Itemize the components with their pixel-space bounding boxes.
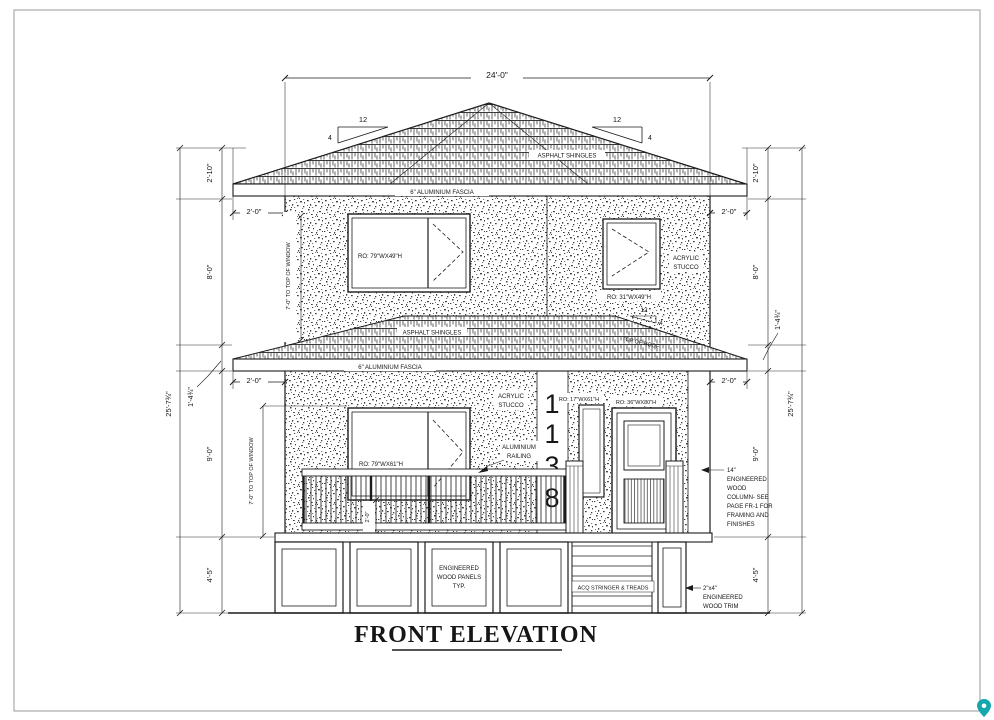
upper-fascia-label: 6" ALUMINIUM FASCIA — [410, 190, 473, 196]
main-floor-dim-right: 9'-0" — [751, 446, 760, 461]
foundation-dim-left: 4'-5" — [205, 567, 214, 582]
svg-text:ENGINEERED: ENGINEERED — [703, 595, 743, 601]
foundation-dim-right: 4'-5" — [751, 567, 760, 582]
overhang-dim-lower-left: 2'-0" — [247, 376, 262, 385]
svg-text:COLUMN- SEE: COLUMN- SEE — [727, 495, 769, 501]
overhang-dim-upper-right: 2'-0" — [722, 207, 737, 216]
svg-text:RAILING: RAILING — [507, 454, 531, 460]
svg-text:STUCCO: STUCCO — [498, 403, 524, 409]
svg-text:12: 12 — [613, 115, 621, 124]
upper-fascia-band — [233, 184, 747, 196]
main-stucco-label: ACRYLIC STUCCO — [494, 390, 528, 410]
front-elevation-sheet: ASPHALT SHINGLES 6" ALUMINIUM FASCIA 12 … — [0, 0, 994, 720]
upper-floor-dim-right: 8'-0" — [751, 264, 760, 279]
wood-panel-3: ENGINEERED WOOD PANELS TYP. — [425, 542, 493, 613]
upper-stucco-label: ACRYLIC STUCCO — [669, 252, 703, 272]
location-pin-icon — [977, 699, 991, 717]
roof-band-dim-left: 1'-4¾" — [188, 387, 195, 407]
roof-height-dim-left: 2'-10" — [205, 163, 214, 182]
svg-text:ACRYLIC: ACRYLIC — [673, 256, 700, 262]
upper-roof-material-label: ASPHALT SHINGLES — [538, 154, 597, 160]
total-height-dim-left: 25'-7¾" — [164, 391, 173, 417]
deck-band — [275, 533, 712, 542]
newel-post-left — [566, 461, 583, 535]
porch-railing — [302, 469, 566, 530]
stair-note: ACQ STRINGER & TREADS — [578, 586, 649, 592]
main-window-ro: RO: 79"WX61"H — [359, 462, 403, 468]
wood-panel-4 — [500, 542, 568, 613]
svg-text:ALUMINIUM: ALUMINIUM — [502, 445, 536, 451]
svg-text:TYP.: TYP. — [453, 584, 466, 590]
drawing-title: FRONT ELEVATION — [354, 622, 598, 650]
svg-text:FINISHES: FINISHES — [727, 522, 755, 528]
svg-text:PAGE FR-1 FOR: PAGE FR-1 FOR — [727, 504, 773, 510]
upper-floor-dim-left: 8'-0" — [205, 264, 214, 279]
main-floor-dim-left: 9'-0" — [205, 446, 214, 461]
upper-roof: ASPHALT SHINGLES 6" ALUMINIUM FASCIA 12 … — [233, 103, 747, 196]
main-floor-wall: 1 1 3 8 RO: 79"WX61"H ACRYLIC STUCCO RO:… — [249, 371, 710, 539]
upper-window-head-dim: 7'-0" TO TOP OF WINDOW — [286, 242, 292, 310]
upper-left-window-ro: RO: 79"WX49"H — [358, 254, 402, 260]
svg-text:ENGINEERED: ENGINEERED — [439, 566, 479, 572]
page-title: FRONT ELEVATION — [354, 622, 598, 648]
svg-text:2'-0": 2'-0" — [365, 511, 371, 522]
wood-panel-right — [658, 542, 686, 613]
roof-band-dim-right: 1'-4¾" — [775, 310, 782, 330]
svg-text:12: 12 — [640, 307, 648, 314]
roof-height-dim-right: 2'-10" — [751, 163, 760, 182]
svg-text:STUCCO: STUCCO — [673, 265, 699, 271]
upper-right-window: RO: 31"WX49"H — [597, 219, 661, 301]
svg-text:12: 12 — [359, 115, 367, 124]
svg-text:1: 1 — [544, 419, 559, 449]
stairs: ACQ STRINGER & TREADS — [572, 542, 654, 613]
svg-text:WOOD: WOOD — [727, 486, 747, 492]
svg-text:ENGINEERED: ENGINEERED — [727, 477, 767, 483]
svg-text:FRAMING AND: FRAMING AND — [727, 513, 769, 519]
door-ro: RO: 36"WX80"H — [616, 400, 656, 406]
newel-post-right — [666, 461, 683, 535]
svg-text:7'-0" TO TOP OF WINDOW: 7'-0" TO TOP OF WINDOW — [249, 437, 255, 505]
foundation: ENGINEERED WOOD PANELS TYP. ACQ STRINGER… — [228, 533, 770, 613]
overhang-dim-upper-left: 2'-0" — [247, 207, 262, 216]
sidelight-ro: RO: 17"WX61"H — [559, 397, 599, 403]
lower-fascia-band — [233, 359, 747, 371]
upper-left-window: RO: 79"WX49"H — [348, 214, 470, 292]
svg-text:WOOD TRIM: WOOD TRIM — [703, 604, 739, 610]
lower-fascia-label: 6" ALUMINIUM FASCIA — [358, 365, 421, 371]
svg-text:2"x4": 2"x4" — [703, 586, 717, 592]
column-note: 14" ENGINEERED WOOD COLUMN- SEE PAGE FR-… — [701, 467, 773, 528]
total-height-dim-right: 25'-7¾" — [786, 391, 795, 417]
svg-text:WOOD PANELS: WOOD PANELS — [437, 575, 481, 581]
svg-text:14": 14" — [727, 468, 736, 474]
lower-roof-material-label: ASPHALT SHINGLES — [403, 331, 462, 337]
door-slat-panel — [624, 479, 664, 523]
svg-text:ACRYLIC: ACRYLIC — [498, 394, 525, 400]
upper-right-window-ro: RO: 31"WX49"H — [607, 295, 651, 301]
svg-text:4: 4 — [648, 135, 652, 142]
overhang-dim-lower-right: 2'-0" — [722, 376, 737, 385]
wood-panel-2 — [350, 542, 418, 613]
trim-note: 2"x4" ENGINEERED WOOD TRIM — [685, 585, 743, 610]
svg-text:4: 4 — [328, 135, 332, 142]
wood-panel-1 — [275, 542, 343, 613]
total-width-dim: 24'-0" — [486, 70, 508, 80]
